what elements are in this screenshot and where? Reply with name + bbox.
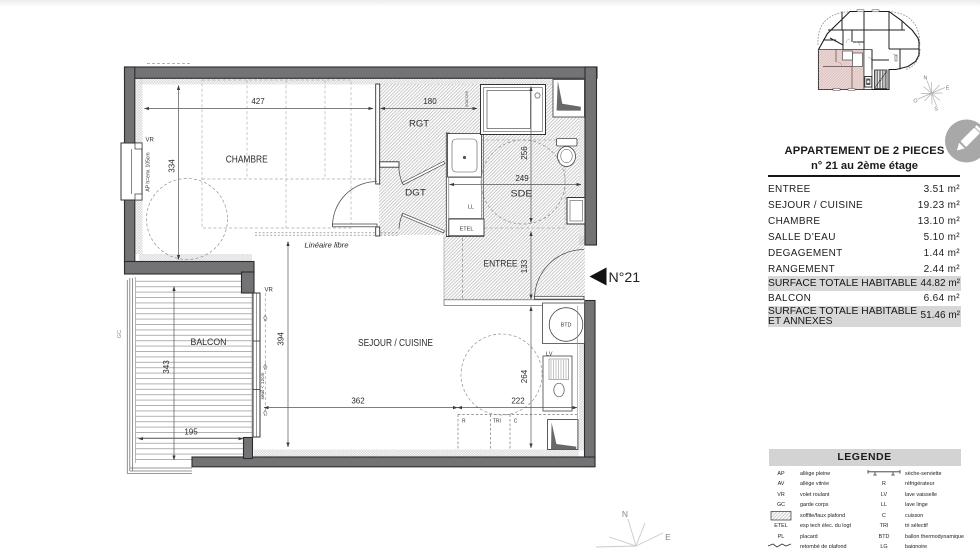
svg-text:Linéaire libre: Linéaire libre — [305, 241, 349, 250]
svg-text:TRI: TRI — [493, 418, 501, 424]
svg-text:C: C — [514, 418, 518, 424]
svg-text:S: S — [934, 107, 938, 113]
svg-text:E: E — [665, 532, 671, 542]
svg-text:sources: sources — [464, 90, 469, 107]
svg-text:195: 195 — [184, 428, 198, 437]
svg-text:334: 334 — [168, 159, 177, 173]
svg-text:N: N — [622, 509, 628, 519]
svg-text:N°21: N°21 — [609, 270, 641, 286]
svg-text:O: O — [913, 99, 917, 105]
svg-text:394: 394 — [277, 332, 286, 346]
svg-text:256: 256 — [520, 146, 529, 160]
svg-text:GC: GC — [117, 330, 123, 338]
svg-text:180: 180 — [423, 97, 437, 106]
svg-text:133: 133 — [520, 259, 529, 273]
svg-text:ENTREE: ENTREE — [484, 259, 518, 270]
svg-text:SDE: SDE — [511, 189, 533, 200]
svg-text:N: N — [924, 76, 928, 82]
svg-text:427: 427 — [251, 97, 265, 106]
svg-text:DGT: DGT — [405, 188, 426, 199]
svg-text:seuil < 12cm: seuil < 12cm — [260, 372, 266, 399]
svg-text:VR: VR — [146, 138, 155, 144]
svg-text:RGT: RGT — [409, 119, 429, 130]
svg-text:E: E — [946, 86, 950, 92]
svg-text:R: R — [462, 418, 466, 424]
svg-text:AP h=env. 105cm: AP h=env. 105cm — [146, 152, 152, 191]
svg-text:343: 343 — [162, 360, 171, 374]
svg-text:LL: LL — [468, 205, 474, 211]
svg-text:ETEL: ETEL — [460, 227, 474, 233]
svg-text:362: 362 — [351, 397, 365, 406]
svg-text:BALCON: BALCON — [191, 337, 227, 348]
svg-text:SEJOUR / CUISINE: SEJOUR / CUISINE — [358, 338, 433, 349]
svg-text:CHAMBRE: CHAMBRE — [226, 155, 268, 166]
svg-text:249: 249 — [515, 174, 529, 183]
svg-text:BTD: BTD — [561, 323, 572, 329]
svg-text:222: 222 — [511, 397, 525, 406]
svg-text:264: 264 — [520, 369, 529, 383]
svg-text:VR: VR — [265, 288, 274, 294]
